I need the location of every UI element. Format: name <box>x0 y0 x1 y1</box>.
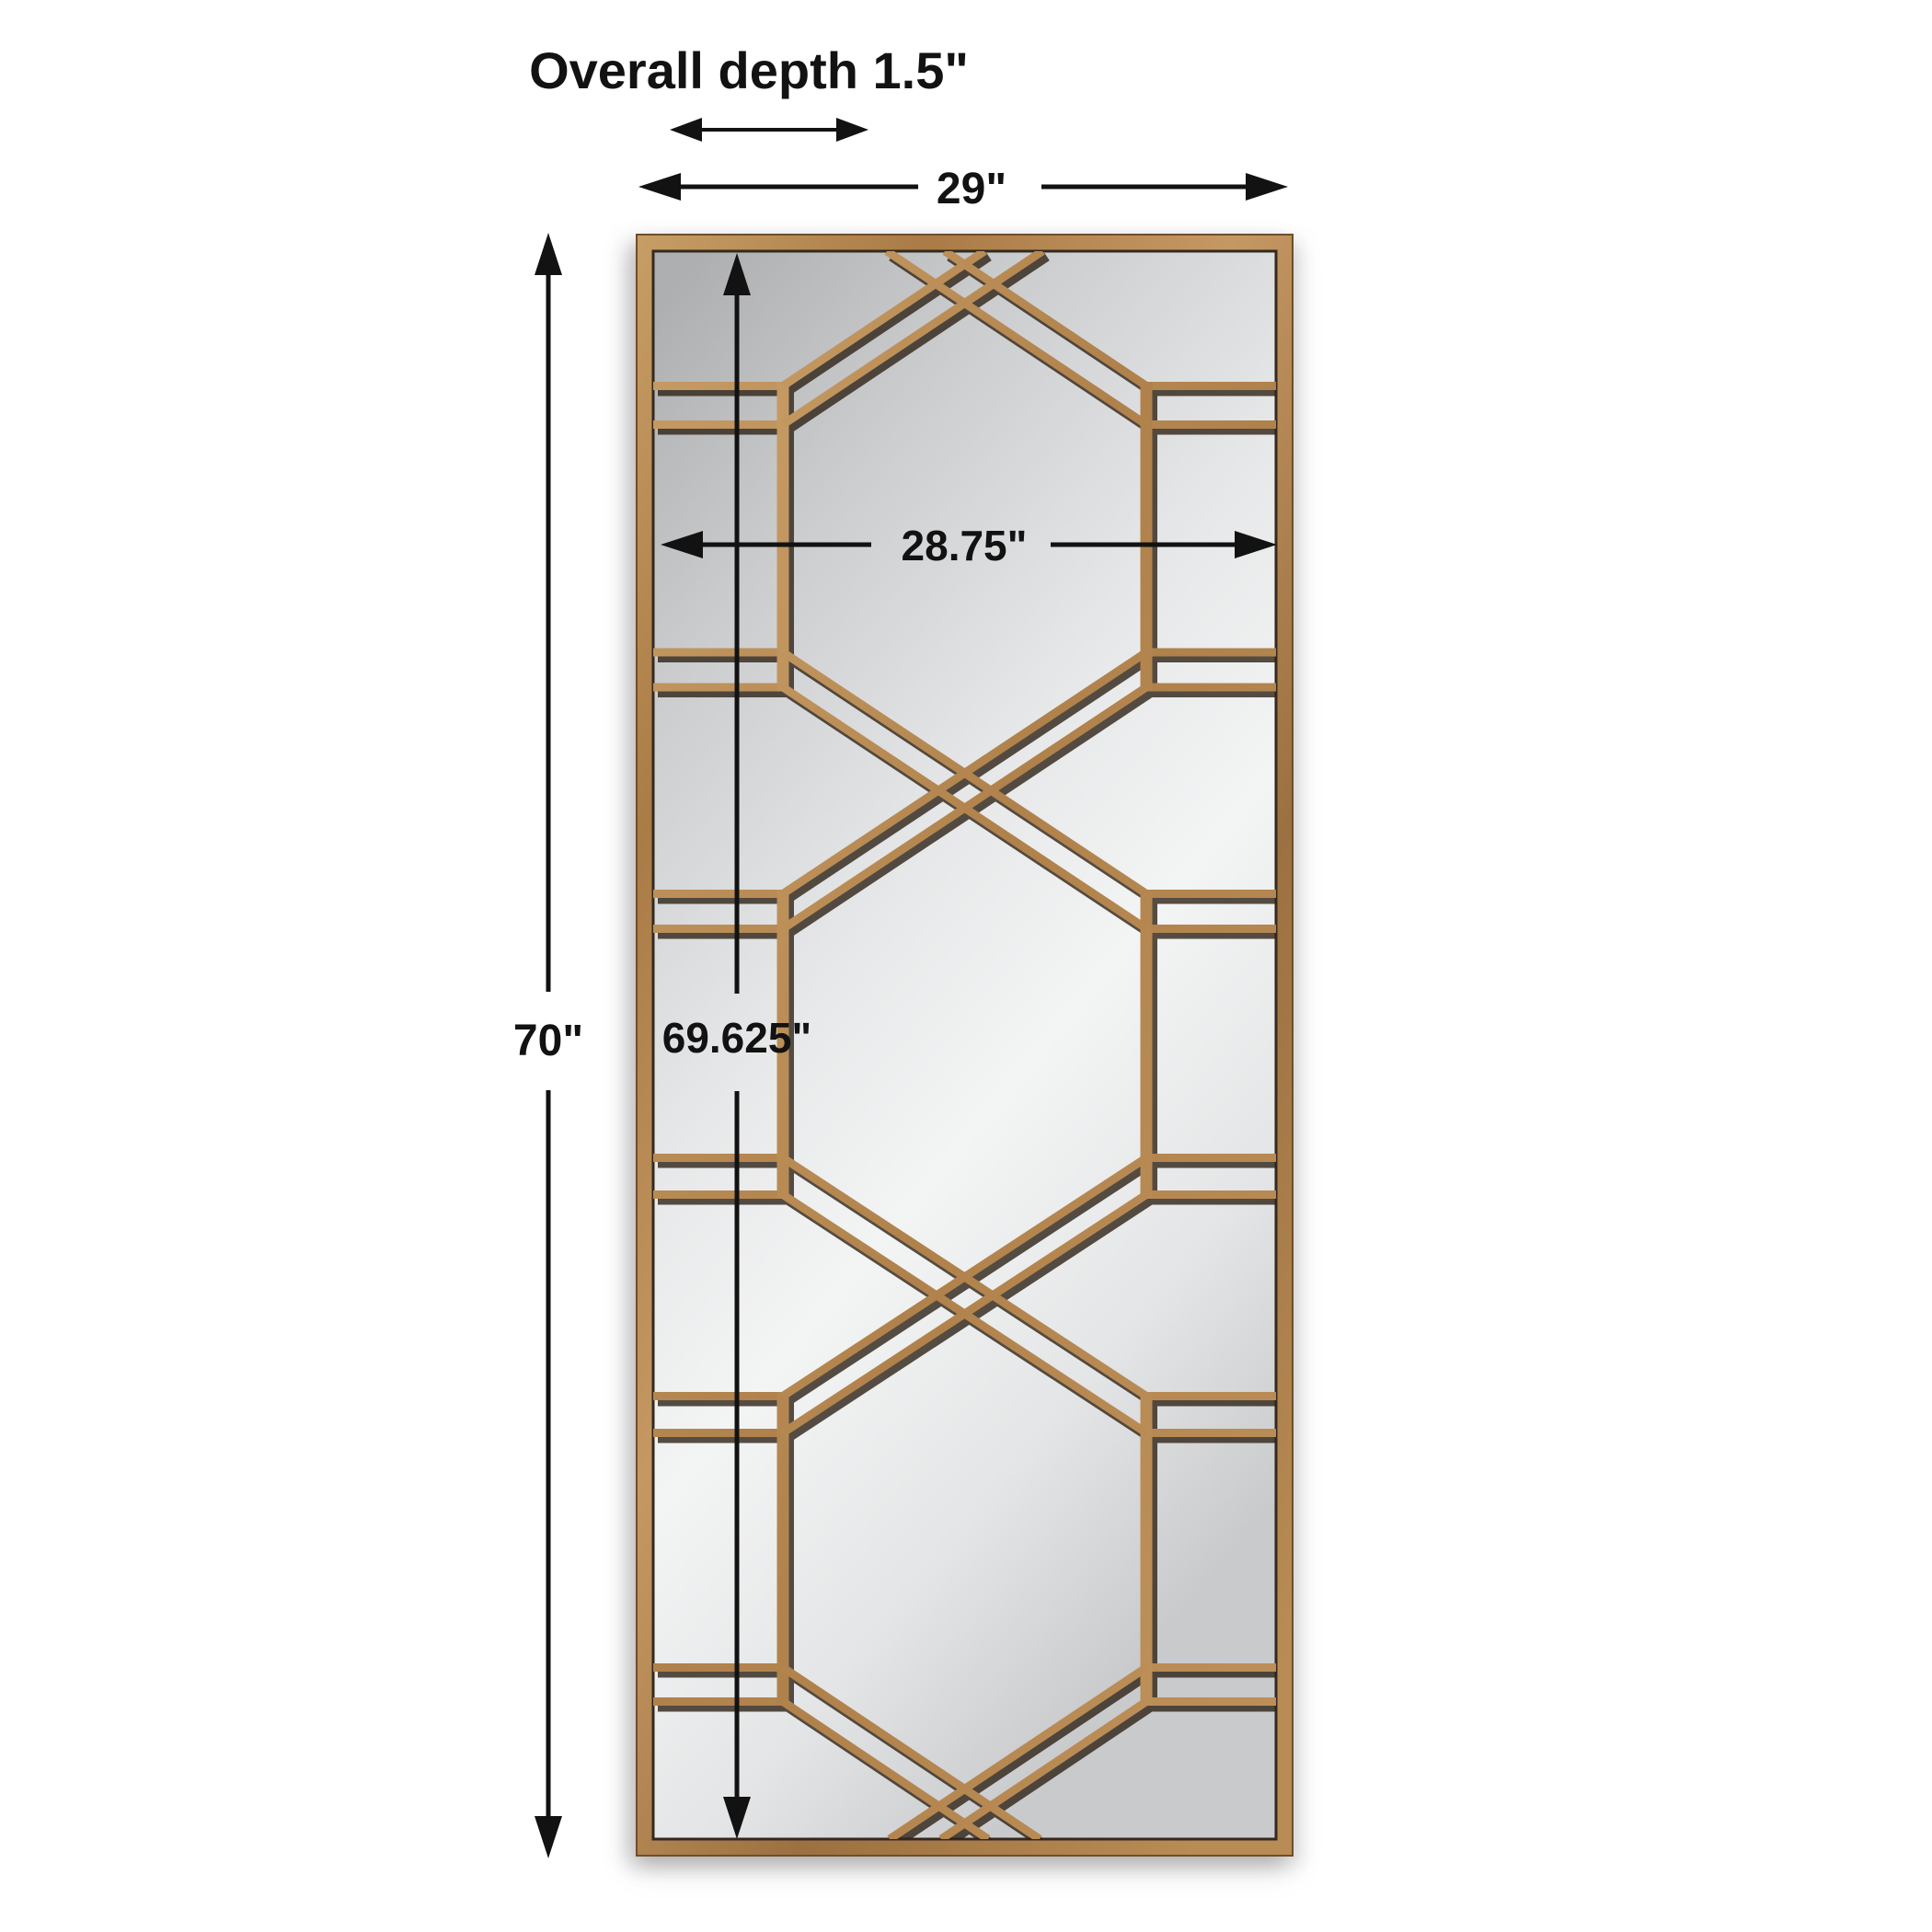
product-dimension-diagram: Overall depth 1.5" 29" 28.75" <box>0 0 1932 1932</box>
arrowhead-up-icon <box>535 233 562 275</box>
inner-height-label: 69.625" <box>662 1014 812 1062</box>
arrowhead-left-icon <box>638 173 681 201</box>
arrowhead-right-icon <box>1246 173 1288 201</box>
outer-height-dimension: 70" <box>513 233 583 1858</box>
outer-width-dimension: 29" <box>638 165 1288 213</box>
inner-width-label: 28.75" <box>902 522 1028 569</box>
overall-depth-label: Overall depth 1.5" <box>529 41 969 99</box>
arrowhead-right-icon <box>836 118 868 142</box>
overall-depth-dimension: Overall depth 1.5" <box>529 41 969 142</box>
outer-width-label: 29" <box>937 165 1006 213</box>
arrowhead-left-icon <box>670 118 702 142</box>
diagram-canvas: Overall depth 1.5" 29" 28.75" <box>0 0 1932 1932</box>
outer-height-label: 70" <box>513 1017 583 1065</box>
arrowhead-down-icon <box>535 1816 562 1858</box>
